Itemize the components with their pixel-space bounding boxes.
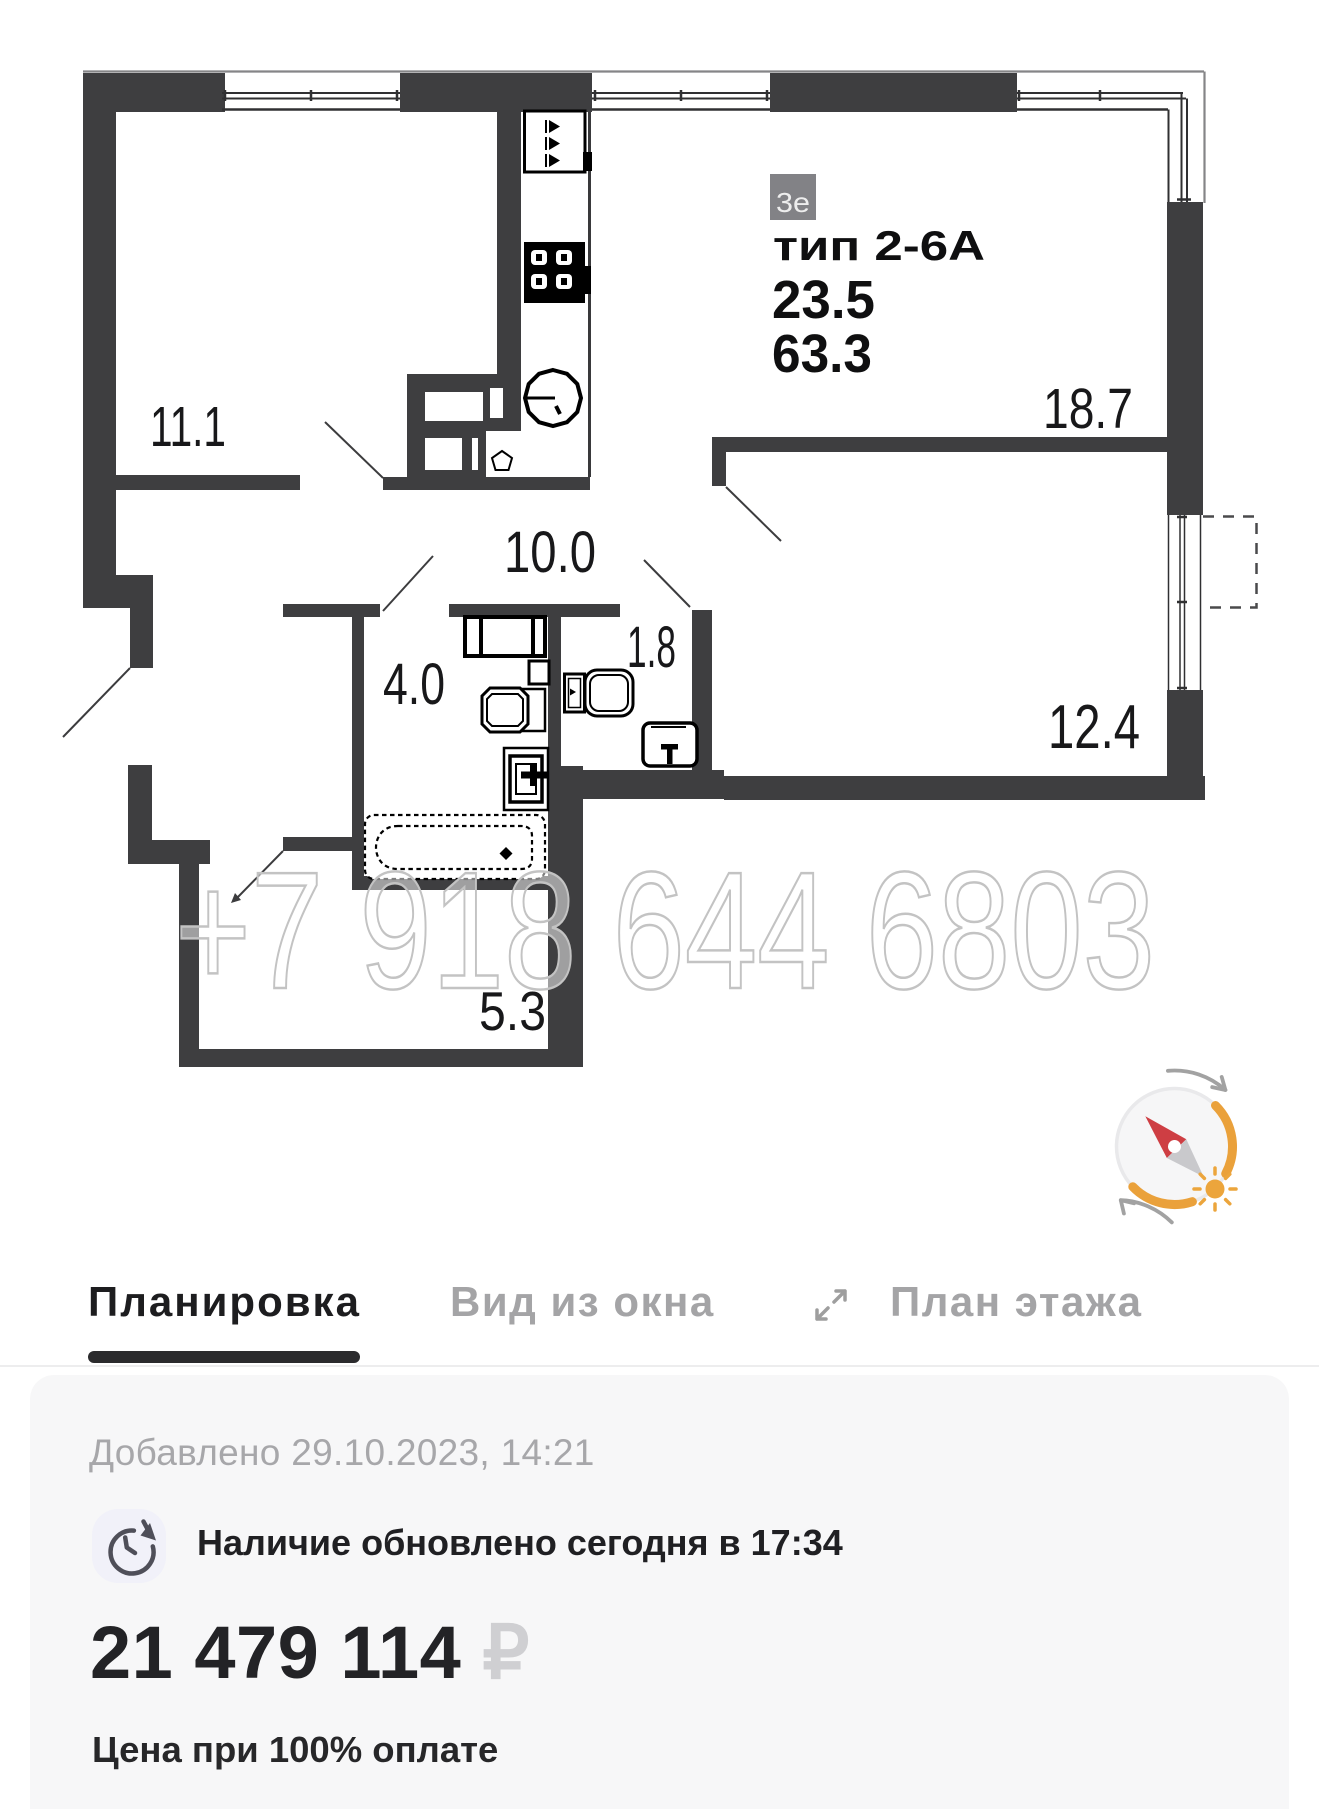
svg-text:18.7: 18.7	[1043, 377, 1133, 441]
svg-text:4.0: 4.0	[383, 652, 445, 717]
svg-text:1.8: 1.8	[627, 615, 676, 680]
svg-text:+7 918 644 6803: +7 918 644 6803	[175, 838, 1155, 1024]
svg-text:3е: 3е	[776, 187, 810, 218]
svg-text:10.0: 10.0	[504, 520, 596, 585]
svg-text:тип 2-6А: тип 2-6А	[773, 222, 985, 269]
svg-text:63.3: 63.3	[772, 324, 872, 384]
svg-text:12.4: 12.4	[1048, 693, 1140, 762]
svg-text:23.5: 23.5	[772, 270, 875, 330]
svg-text:11.1: 11.1	[150, 395, 226, 459]
